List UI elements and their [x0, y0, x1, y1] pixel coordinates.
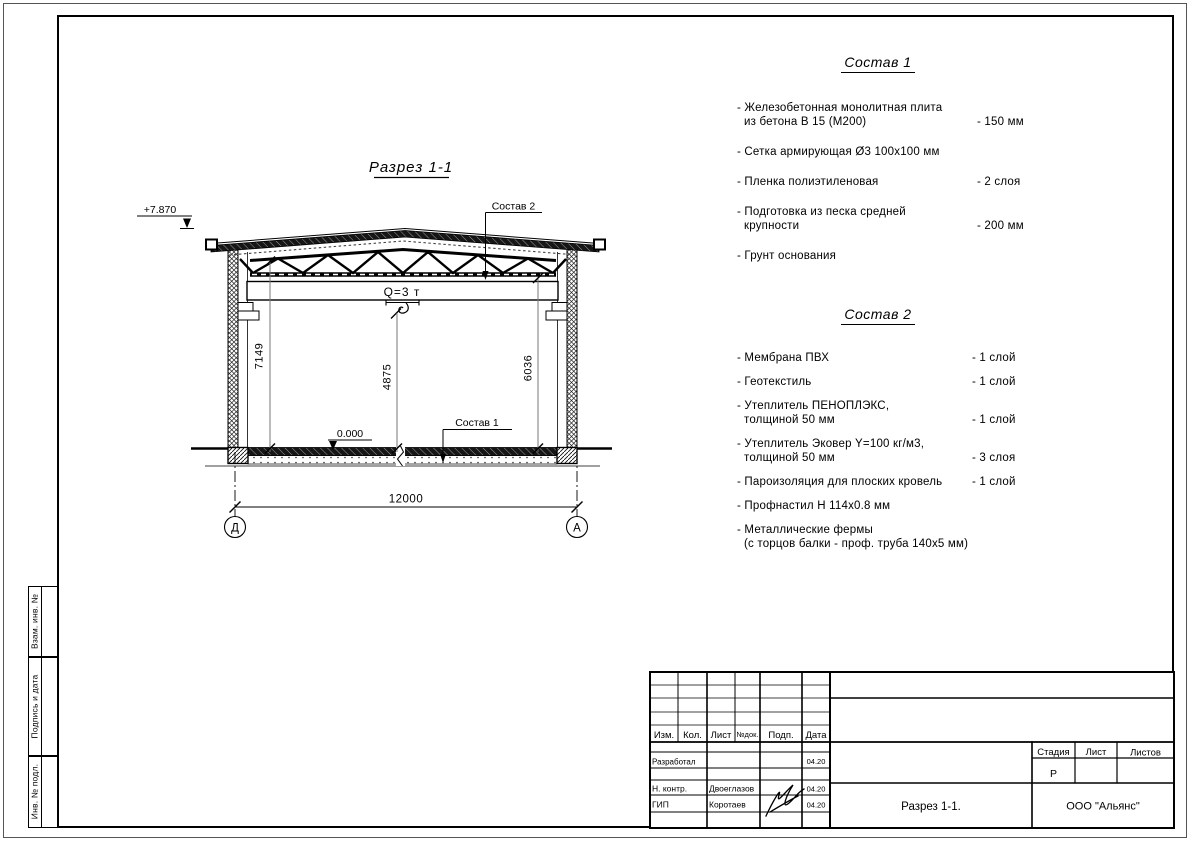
- item-value: - 150 мм: [977, 115, 1024, 129]
- sostav1-title: Состав 1: [841, 54, 914, 73]
- list-item: - Металлические фермы (с торцов балки - …: [737, 523, 1019, 551]
- side-stamp-label-inv: Инв. № подл.: [29, 758, 42, 826]
- list-item: - Пароизоляция для плоских кровель - 1 с…: [737, 475, 1019, 489]
- tb-doc-title: Разрез 1-1.: [901, 801, 961, 813]
- crane-hook: [386, 301, 419, 319]
- item-value: - 3 слоя: [972, 451, 1015, 465]
- crane-capacity-label: Q=3 т: [384, 285, 421, 299]
- axis-right-label: А: [573, 523, 581, 535]
- sostav1-list: Состав 1 - Железобетонная монолитная пли…: [737, 54, 1019, 279]
- item-value: - 1 слой: [972, 351, 1016, 365]
- tb-stage-label: Стадия: [1037, 747, 1069, 758]
- tb-col-podp: Подп.: [768, 730, 793, 741]
- list-item: - Подготовка из песка средней крупности …: [737, 205, 1019, 233]
- dim-7149-value: 7149: [254, 343, 266, 369]
- elevation-zero-value: 0.000: [337, 428, 363, 440]
- tb-col-ndok: №док.: [737, 730, 759, 739]
- side-stamp-label-vzam: Взам. инв. №: [29, 588, 42, 656]
- columns: [228, 250, 577, 449]
- list-item: - Железобетонная монолитная плита из бет…: [737, 101, 1019, 129]
- building-section: Разрез 1-1: [137, 159, 612, 538]
- tb-ncontrol-name: Двоеглазов: [709, 784, 755, 794]
- tb-col-izm: Изм.: [654, 730, 674, 741]
- sostav2-list: Состав 2 - Мембрана ПВХ - 1 слой - Геоте…: [737, 306, 1019, 561]
- axis-left-label: Д: [231, 523, 239, 535]
- tb-gip-date: 04.20: [807, 801, 826, 810]
- tb-developer-role: Разработал: [652, 758, 696, 767]
- dim-6036-value: 6036: [523, 355, 535, 381]
- callout-sostav1-label: Состав 1: [455, 417, 499, 429]
- tb-col-kol: Кол.: [683, 730, 702, 741]
- tb-developer-date: 04.20: [807, 757, 826, 766]
- dim-12000-value: 12000: [389, 494, 423, 506]
- side-stamp-label-podpis: Подпись и дата: [29, 659, 42, 755]
- tb-ncontrol-date: 04.20: [807, 785, 826, 794]
- callout-sostav2-label: Состав 2: [492, 201, 536, 213]
- sostav2-title: Состав 2: [841, 306, 914, 325]
- elevation-top-value: +7.870: [144, 204, 177, 216]
- list-item: - Грунт основания: [737, 249, 1019, 263]
- list-item: - Утеплитель Эковер Y=100 кг/м3, толщино…: [737, 437, 1019, 465]
- tb-gip-name: Коротаев: [709, 800, 746, 810]
- list-item: - Геотекстиль - 1 слой: [737, 375, 1019, 389]
- list-item: - Мембрана ПВХ - 1 слой: [737, 351, 1019, 365]
- list-item: - Сетка армирующая Ø3 100х100 мм: [737, 145, 1019, 159]
- axis-markers: Д А: [225, 517, 588, 538]
- item-value: - 2 слоя: [977, 175, 1020, 189]
- item-value: - 1 слой: [972, 475, 1016, 489]
- corbels: [238, 303, 567, 321]
- tb-col-list: Лист: [711, 730, 732, 741]
- floor-slab: [191, 446, 612, 466]
- elevation-mark-top: +7.870: [137, 204, 194, 229]
- tb-stage-value: Р: [1050, 768, 1057, 780]
- drawing-sheet: Разрез 1-1: [0, 0, 1191, 842]
- item-value: - 1 слой: [972, 413, 1016, 427]
- crane-beam: Q=3 т: [247, 282, 558, 319]
- tb-col-data: Дата: [805, 730, 827, 741]
- tb-sheets-label: Листов: [1130, 748, 1161, 759]
- view-title: Разрез 1-1: [369, 159, 453, 176]
- dim-4875-value: 4875: [382, 364, 394, 390]
- roof-truss: [240, 250, 566, 275]
- item-value: - 200 мм: [977, 219, 1024, 233]
- tb-gip-role: ГИП: [652, 800, 669, 810]
- item-value: - 1 слой: [972, 375, 1016, 389]
- tb-ncontrol-role: Н. контр.: [652, 784, 687, 794]
- title-block: Изм. Кол. Лист №док. Подп. Дата Разработ…: [650, 672, 1174, 828]
- dimension-4875: 4875: [382, 313, 403, 454]
- tb-company: ООО "Альянс": [1066, 801, 1140, 813]
- list-item: - Утеплитель ПЕНОПЛЭКС, толщиной 50 мм -…: [737, 399, 1019, 427]
- list-item: - Пленка полиэтиленовая - 2 слоя: [737, 175, 1019, 189]
- tb-sheet-label: Лист: [1086, 747, 1107, 758]
- list-item: - Профнастил Н 114х0.8 мм: [737, 499, 1019, 513]
- elevation-mark-zero: 0.000: [328, 428, 372, 450]
